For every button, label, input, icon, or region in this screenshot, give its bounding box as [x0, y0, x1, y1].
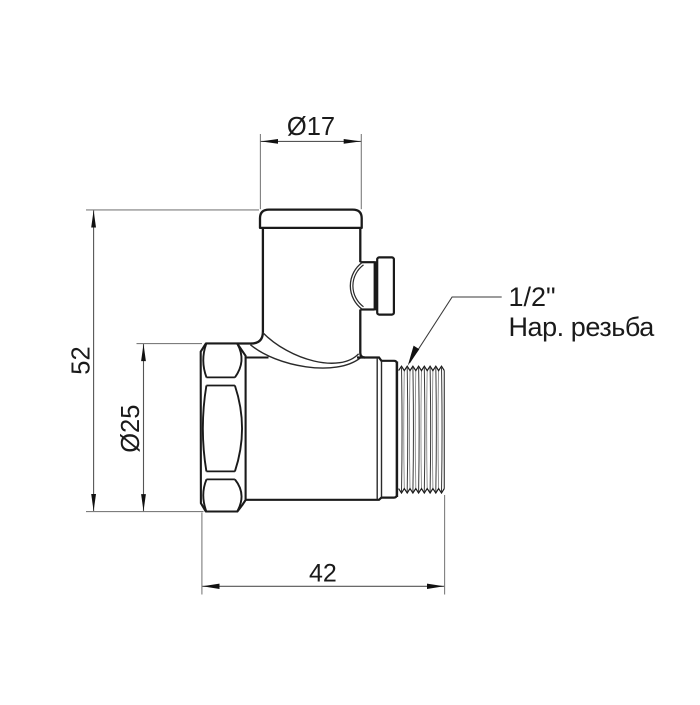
svg-text:52: 52	[67, 346, 95, 374]
svg-text:Ø25: Ø25	[117, 405, 145, 453]
svg-text:1/2": 1/2"	[509, 282, 556, 312]
svg-text:Ø17: Ø17	[287, 113, 335, 141]
svg-text:Нар. резьба: Нар. резьба	[509, 312, 656, 342]
svg-text:42: 42	[309, 560, 337, 588]
